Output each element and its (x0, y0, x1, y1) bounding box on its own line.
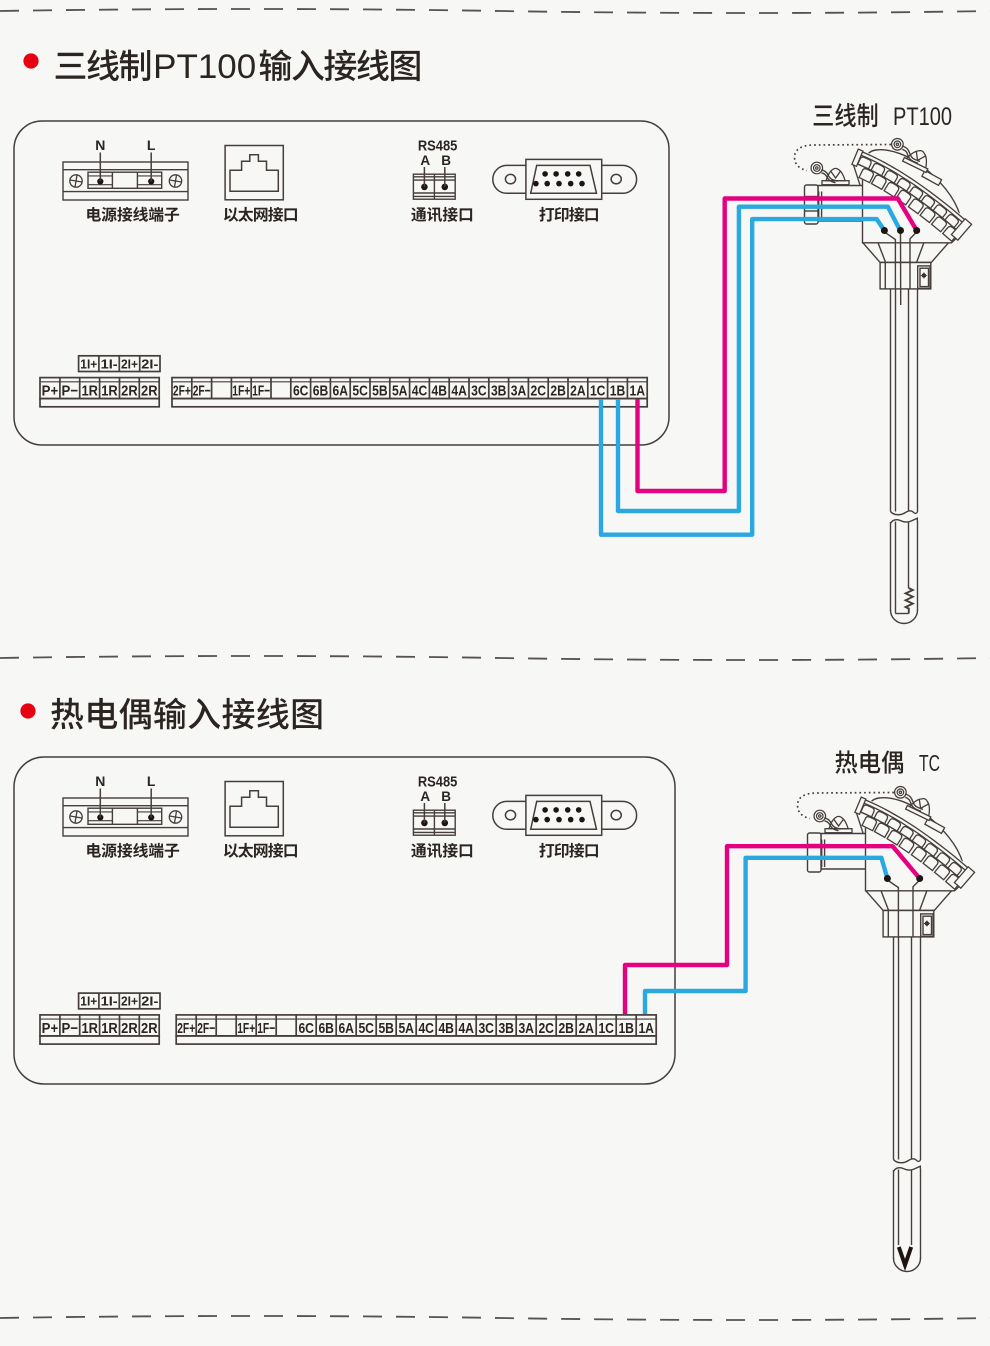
svg-text:2F−: 2F− (193, 383, 211, 400)
svg-text:PT100: PT100 (893, 103, 952, 131)
svg-text:2R: 2R (121, 383, 138, 400)
svg-text:4A: 4A (451, 383, 467, 400)
svg-text:P+: P+ (42, 383, 59, 400)
svg-text:4C: 4C (412, 383, 428, 400)
svg-text:1R: 1R (101, 383, 118, 400)
svg-text:L: L (147, 773, 156, 789)
svg-text:5C: 5C (358, 1020, 374, 1037)
svg-text:6A: 6A (338, 1020, 354, 1037)
svg-text:3B: 3B (498, 1020, 514, 1037)
svg-text:P−: P− (62, 1020, 79, 1037)
svg-text:1B: 1B (610, 383, 626, 400)
svg-text:2F+: 2F+ (173, 383, 191, 400)
svg-text:2A: 2A (578, 1020, 594, 1037)
svg-text:1I+: 1I+ (80, 356, 97, 371)
svg-text:B: B (441, 153, 451, 168)
svg-text:2B: 2B (550, 383, 566, 400)
svg-text:A: A (420, 153, 430, 168)
svg-text:3C: 3C (478, 1020, 494, 1037)
svg-text:5B: 5B (378, 1020, 394, 1037)
svg-text:RS485: RS485 (418, 138, 458, 154)
svg-text:1F+: 1F+ (237, 1020, 255, 1037)
svg-text:4B: 4B (438, 1020, 454, 1037)
svg-text:1A: 1A (630, 383, 646, 400)
svg-text:1I-: 1I- (101, 994, 118, 1009)
svg-text:RS485: RS485 (418, 774, 458, 790)
svg-text:P+: P+ (42, 1020, 59, 1037)
svg-text:TC: TC (919, 750, 940, 776)
svg-text:3C: 3C (471, 383, 487, 400)
svg-text:5C: 5C (352, 383, 368, 400)
svg-text:1C: 1C (598, 1020, 614, 1037)
svg-text:N: N (95, 773, 105, 789)
svg-text:6B: 6B (313, 383, 329, 400)
svg-text:4C: 4C (418, 1020, 434, 1037)
svg-text:N: N (95, 137, 105, 153)
svg-text:1R: 1R (81, 383, 98, 400)
svg-text:2I+: 2I+ (121, 356, 138, 371)
svg-text:L: L (147, 137, 156, 153)
svg-text:5A: 5A (398, 1020, 414, 1037)
svg-text:1C: 1C (590, 383, 606, 400)
svg-text:3A: 3A (518, 1020, 534, 1037)
svg-text:1R: 1R (101, 1020, 118, 1037)
svg-text:1F+: 1F+ (232, 383, 250, 400)
svg-text:B: B (441, 789, 451, 804)
svg-text:2A: 2A (570, 383, 586, 400)
svg-text:1I+: 1I+ (80, 994, 97, 1009)
svg-text:5A: 5A (392, 383, 408, 400)
svg-text:3A: 3A (511, 383, 527, 400)
svg-text:2F−: 2F− (197, 1020, 215, 1037)
svg-text:3B: 3B (491, 383, 507, 400)
svg-text:2B: 2B (558, 1020, 574, 1037)
svg-text:2R: 2R (121, 1020, 138, 1037)
svg-text:PT100: PT100 (153, 48, 256, 86)
svg-text:6B: 6B (318, 1020, 334, 1037)
svg-text:1R: 1R (81, 1020, 98, 1037)
svg-text:2I-: 2I- (141, 994, 158, 1009)
svg-text:6C: 6C (298, 1020, 314, 1037)
svg-text:1F−: 1F− (257, 1020, 275, 1037)
svg-text:2F+: 2F+ (177, 1020, 195, 1037)
svg-text:2R: 2R (141, 383, 158, 400)
svg-text:1F−: 1F− (252, 383, 270, 400)
svg-text:1I-: 1I- (101, 356, 118, 371)
svg-text:2I+: 2I+ (121, 994, 138, 1009)
svg-text:1A: 1A (638, 1020, 654, 1037)
svg-text:1B: 1B (618, 1020, 634, 1037)
svg-text:5B: 5B (372, 383, 388, 400)
svg-text:6C: 6C (293, 383, 309, 400)
svg-text:2I-: 2I- (141, 356, 158, 371)
svg-text:2C: 2C (538, 1020, 554, 1037)
svg-text:P−: P− (62, 383, 79, 400)
svg-text:2R: 2R (141, 1020, 158, 1037)
svg-text:4A: 4A (458, 1020, 474, 1037)
svg-text:2C: 2C (531, 383, 547, 400)
svg-text:6A: 6A (333, 383, 349, 400)
svg-text:A: A (420, 789, 430, 804)
svg-text:4B: 4B (432, 383, 448, 400)
